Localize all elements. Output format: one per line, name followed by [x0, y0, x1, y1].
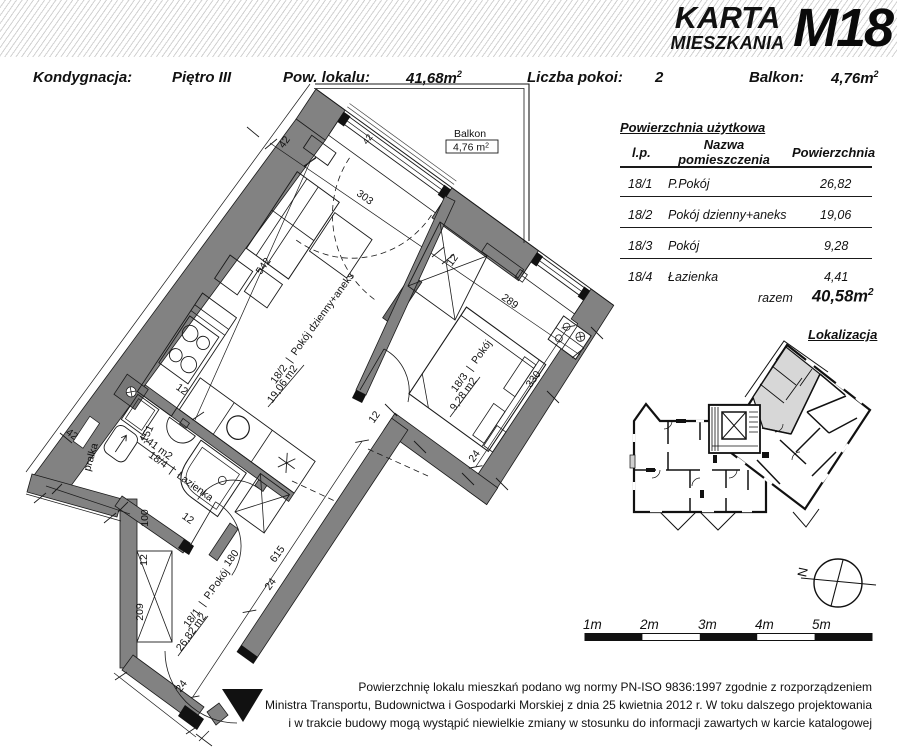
svg-text:18/4 | Łazienka: 18/4 | Łazienka — [146, 449, 215, 504]
svg-text:2m: 2m — [639, 617, 659, 632]
svg-text:4,76 m2: 4,76 m2 — [453, 142, 489, 154]
svg-text:12: 12 — [180, 510, 197, 527]
svg-text:209: 209 — [134, 603, 146, 621]
svg-text:18/2 | Pokój dzienny+aneks: 18/2 | Pokój dzienny+aneks — [268, 270, 357, 386]
svg-text:5m: 5m — [812, 617, 831, 632]
svg-text:615: 615 — [268, 543, 288, 564]
svg-text:Balkon: Balkon — [454, 128, 486, 140]
svg-text:289: 289 — [499, 292, 520, 312]
svg-text:12: 12 — [366, 409, 383, 426]
svg-text:4m: 4m — [755, 617, 774, 632]
svg-text:180: 180 — [222, 547, 242, 568]
svg-text:12: 12 — [138, 554, 150, 566]
svg-text:100: 100 — [139, 509, 151, 527]
svg-text:303: 303 — [354, 188, 375, 208]
svg-text:24: 24 — [262, 576, 279, 593]
svg-text:3m: 3m — [698, 617, 717, 632]
svg-text:1m: 1m — [583, 617, 602, 632]
svg-text:24: 24 — [466, 448, 483, 465]
svg-text:N: N — [794, 566, 811, 578]
